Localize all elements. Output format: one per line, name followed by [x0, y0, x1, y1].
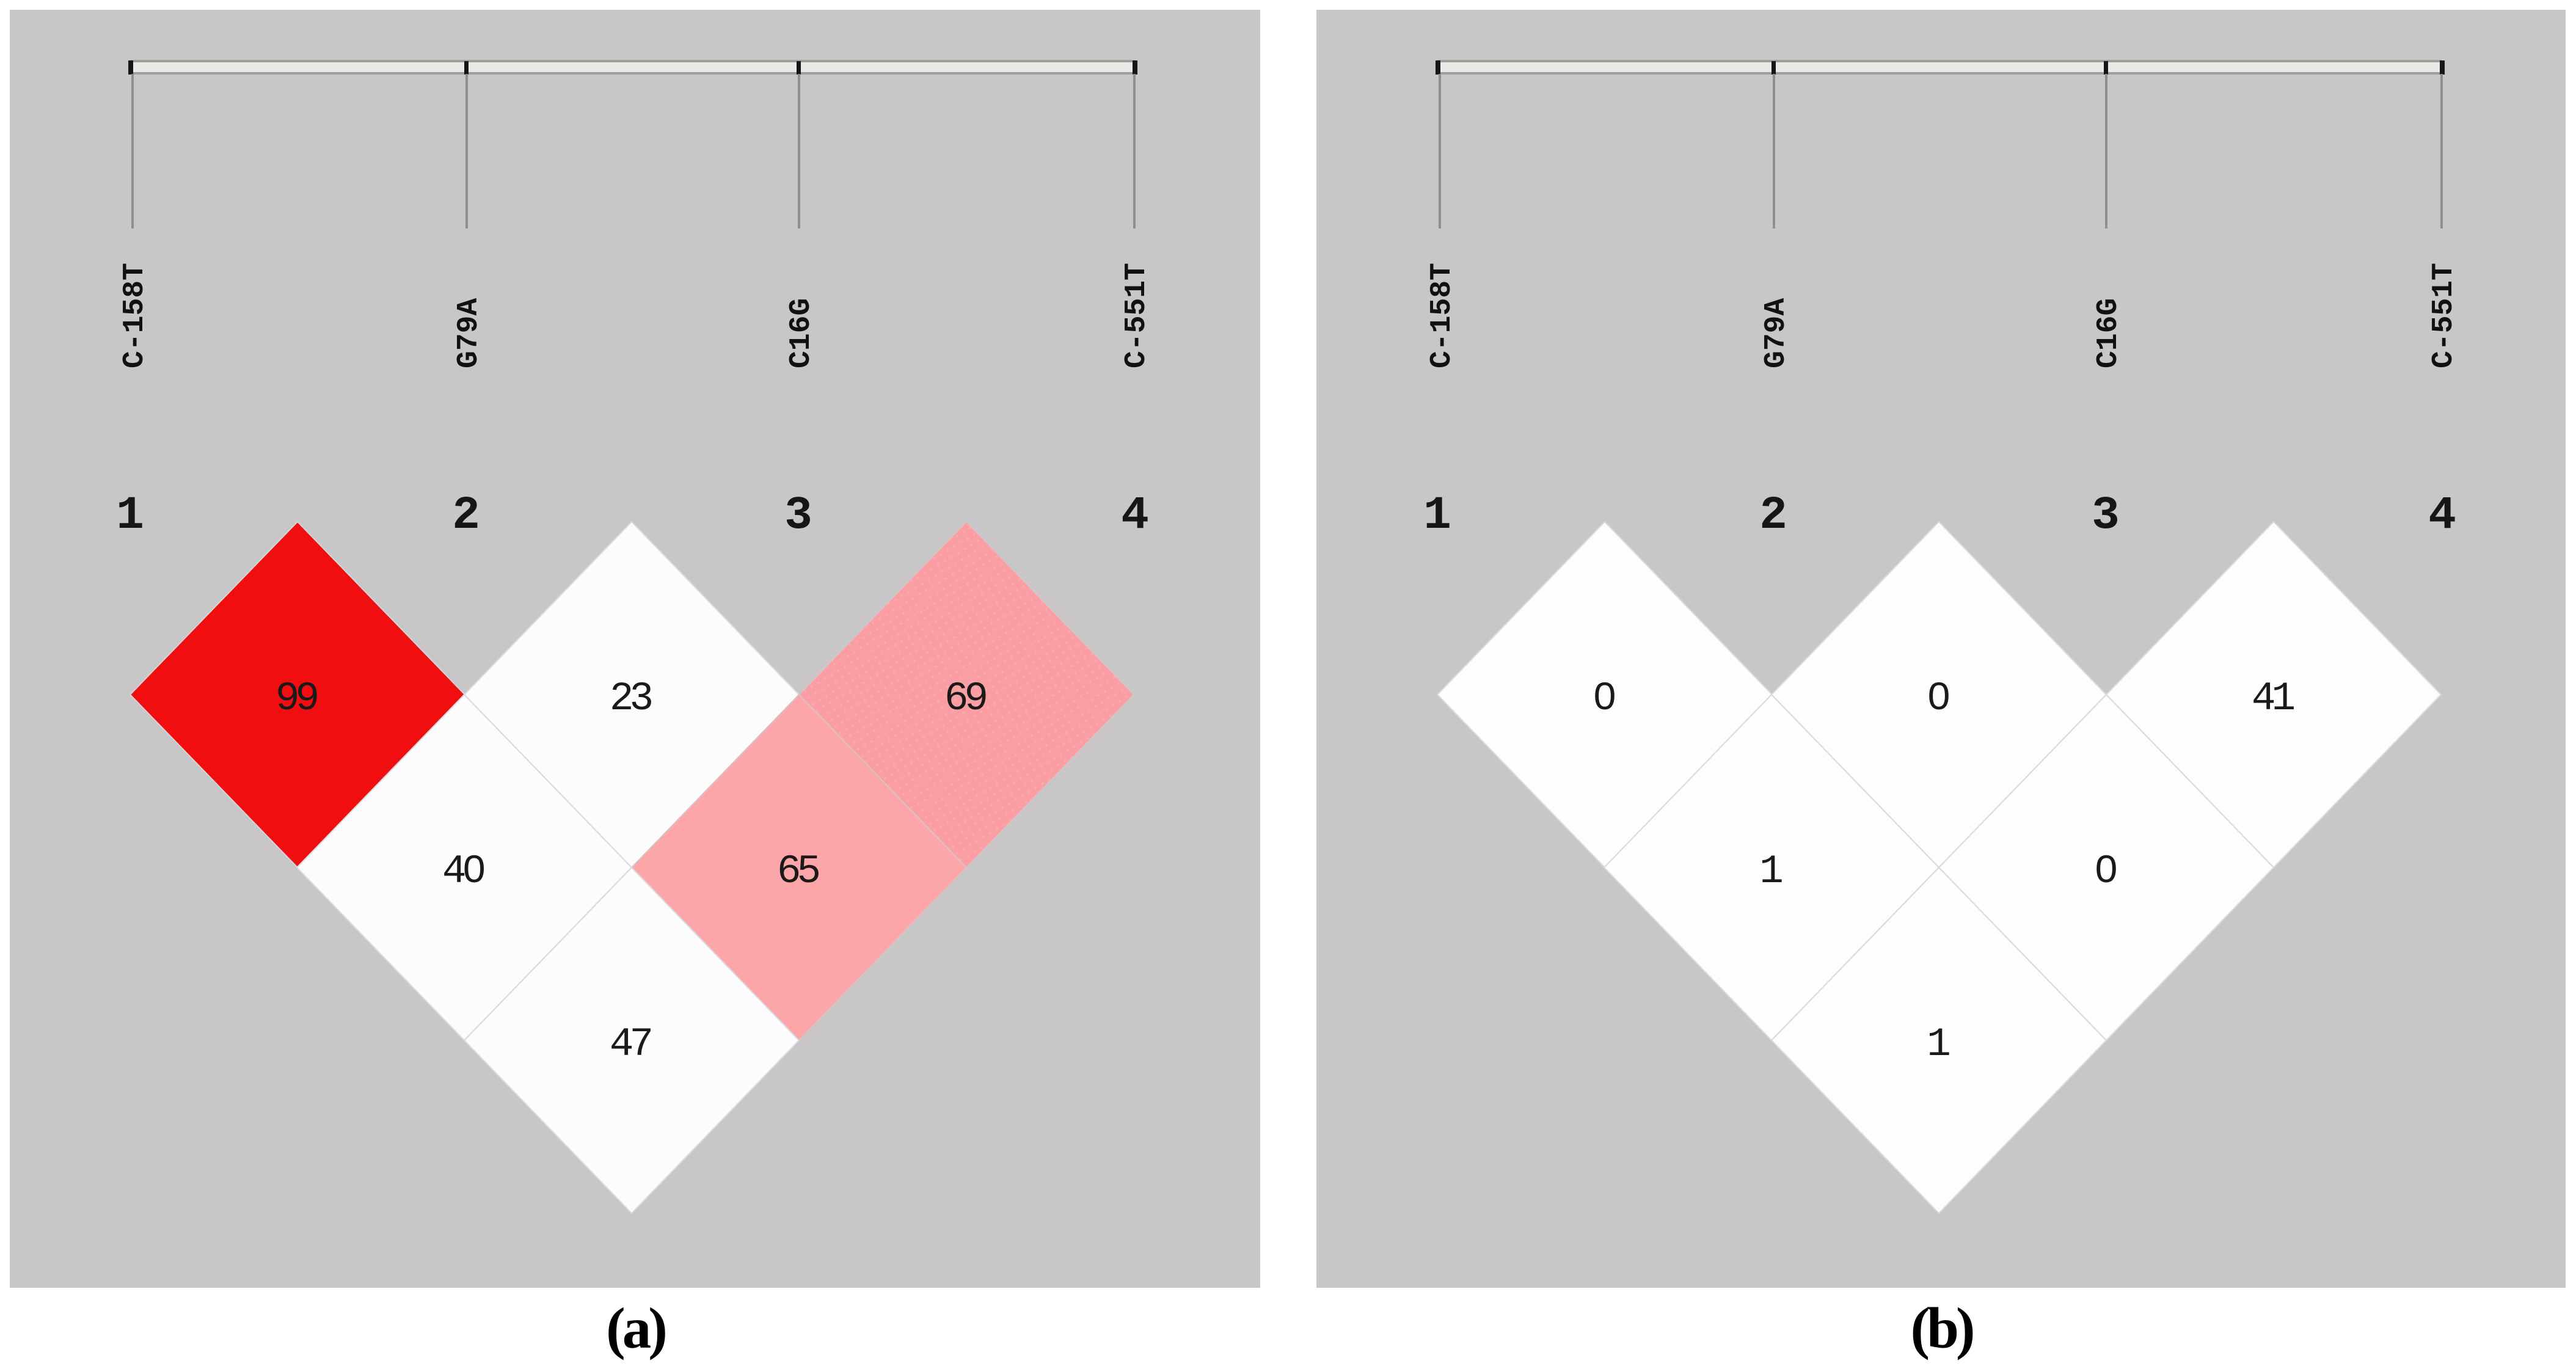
svg-text:47: 47	[610, 1021, 651, 1067]
svg-text:99: 99	[275, 676, 318, 721]
svg-text:G79A: G79A	[453, 298, 486, 368]
svg-text:2: 2	[1759, 489, 1787, 542]
svg-text:(a): (a)	[606, 1296, 665, 1361]
svg-text:C16G: C16G	[785, 298, 818, 368]
svg-text:1: 1	[1423, 489, 1451, 542]
svg-text:65: 65	[777, 849, 819, 894]
svg-text:1: 1	[116, 489, 144, 542]
svg-text:2: 2	[452, 489, 480, 542]
svg-text:C-158T: C-158T	[119, 263, 151, 368]
svg-text:(b): (b)	[1910, 1296, 1972, 1361]
svg-text:C-158T: C-158T	[1426, 263, 1459, 368]
svg-text:23: 23	[610, 676, 652, 721]
svg-text:3: 3	[784, 489, 812, 542]
svg-text:C16G: C16G	[2092, 298, 2125, 368]
svg-text:4: 4	[2428, 489, 2456, 542]
svg-text:69: 69	[944, 676, 987, 721]
svg-text:41: 41	[2252, 676, 2294, 721]
svg-text:C-551T: C-551T	[2428, 263, 2461, 368]
svg-text:3: 3	[2092, 489, 2120, 542]
svg-text:G79A: G79A	[1760, 298, 1793, 368]
svg-text:1: 1	[1759, 849, 1782, 894]
svg-text:1: 1	[1927, 1021, 1949, 1067]
svg-text:C-551T: C-551T	[1120, 263, 1153, 368]
svg-text:4: 4	[1121, 489, 1149, 542]
